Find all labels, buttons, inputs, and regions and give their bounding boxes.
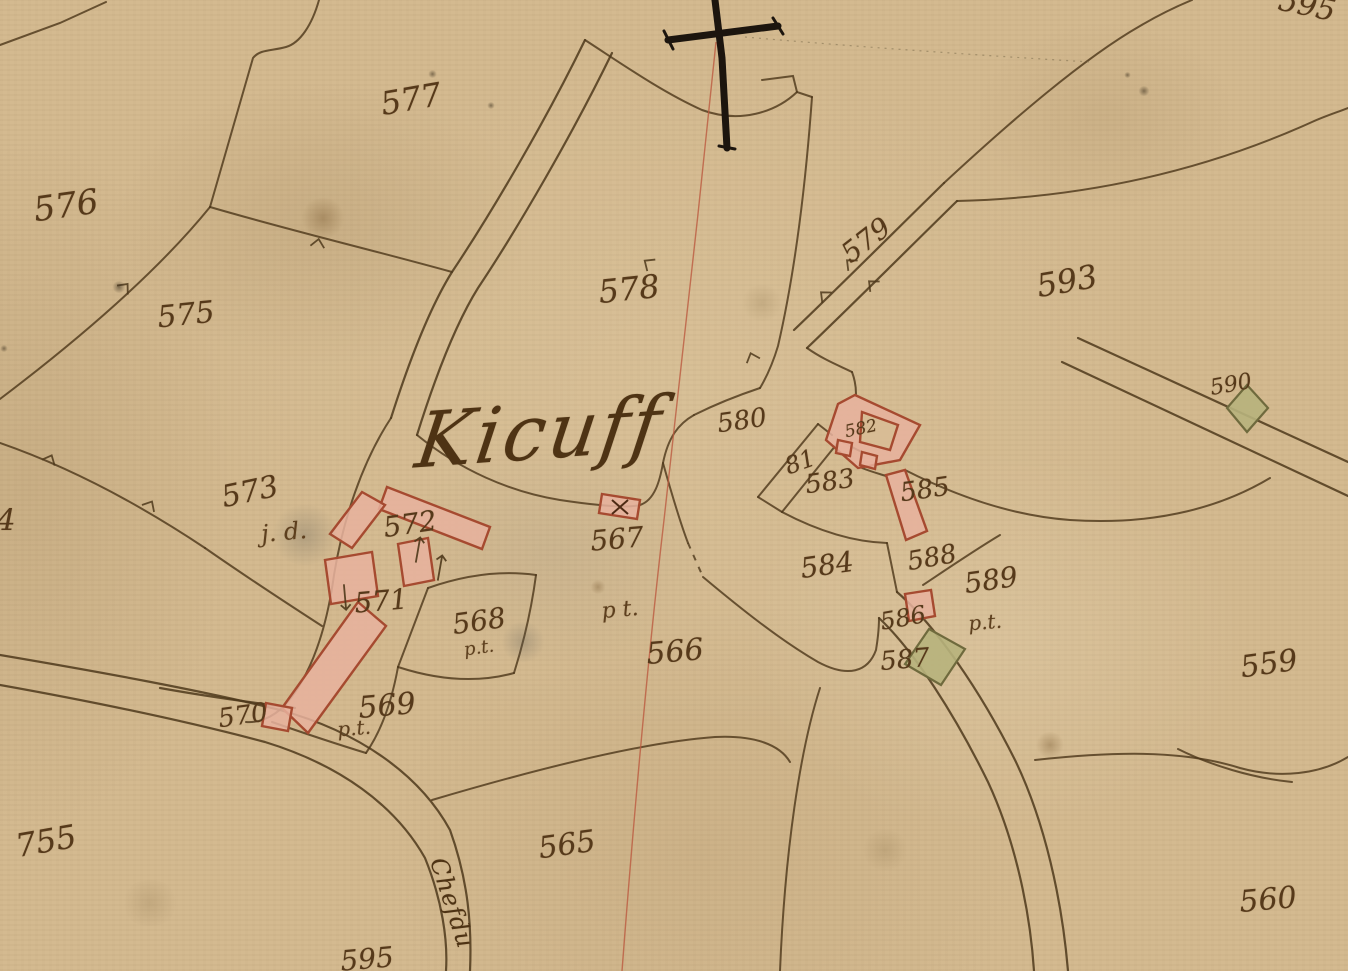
- parcel-label-559: 559: [1238, 643, 1300, 686]
- parcel-label-560: 560: [1238, 880, 1298, 920]
- parcel-label-568: 568: [450, 601, 508, 641]
- parcel-label-579: 579: [835, 211, 897, 270]
- parcel-label-4: 4: [0, 504, 16, 539]
- parcel-label-755: 755: [13, 817, 80, 865]
- parcel-label-590: 590: [1208, 369, 1254, 401]
- parcel-label-566: 566: [645, 632, 705, 672]
- annotation-label: p.t.: [463, 636, 496, 661]
- parcel-label-577: 577: [378, 75, 445, 123]
- parcel-label-573: 573: [218, 469, 281, 515]
- parcel-label-580: 580: [715, 403, 768, 440]
- map-labels: 5955765775755785795935735725715685695705…: [0, 0, 1348, 971]
- parcel-label-593: 593: [1034, 257, 1101, 305]
- annotation-label: p t.: [601, 596, 640, 624]
- parcel-label-81: 81: [781, 444, 819, 481]
- parcel-label-595: 595: [1275, 0, 1338, 29]
- annotation-label: p.t.: [336, 715, 372, 742]
- parcel-label-584: 584: [798, 545, 856, 585]
- annotation-label: p.t.: [967, 609, 1003, 636]
- parcel-label-578: 578: [597, 267, 662, 311]
- road-label: Chefdu: [424, 854, 480, 952]
- parcel-label-565: 565: [536, 824, 598, 867]
- cadastral-map: 5955765775755785795935735725715685695705…: [0, 0, 1348, 971]
- parcel-label-567: 567: [589, 520, 645, 558]
- parcel-label-570: 570: [216, 698, 269, 735]
- parcel-label-575: 575: [156, 295, 217, 336]
- parcel-label-582: 582: [843, 416, 879, 442]
- parcel-label-569: 569: [357, 686, 417, 726]
- parcel-label-576: 576: [31, 182, 101, 231]
- parcel-label-589: 589: [962, 560, 1020, 600]
- parcel-label-571: 571: [353, 582, 409, 620]
- parcel-label-586: 586: [878, 600, 928, 636]
- annotation-label: j. d.: [260, 516, 308, 548]
- parcel-label-585: 585: [898, 472, 951, 509]
- parcel-label-587: 587: [879, 643, 931, 677]
- parcel-label-572: 572: [381, 504, 439, 544]
- place-label: Kicuff: [411, 378, 670, 485]
- parcel-label-595: 595: [339, 940, 395, 971]
- parcel-label-588: 588: [905, 539, 959, 577]
- parcel-label-583: 583: [803, 464, 856, 501]
